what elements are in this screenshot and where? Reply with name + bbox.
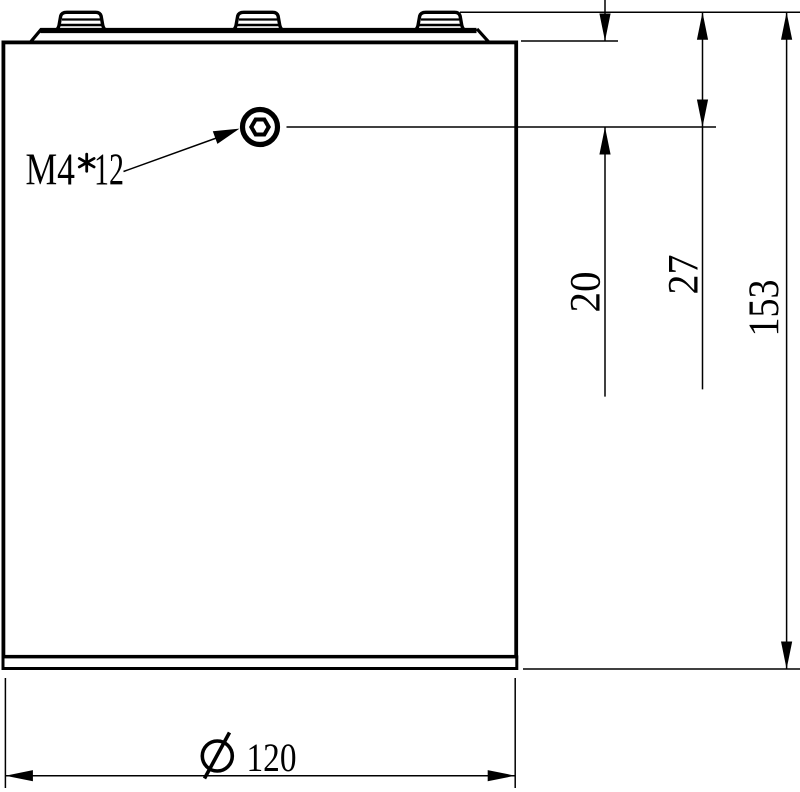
svg-text:20: 20 — [563, 272, 610, 313]
svg-text:120: 120 — [247, 735, 297, 780]
svg-text:27: 27 — [661, 255, 708, 295]
svg-text:153: 153 — [741, 280, 788, 337]
svg-text:12: 12 — [94, 145, 124, 195]
svg-text:M4: M4 — [26, 145, 76, 195]
